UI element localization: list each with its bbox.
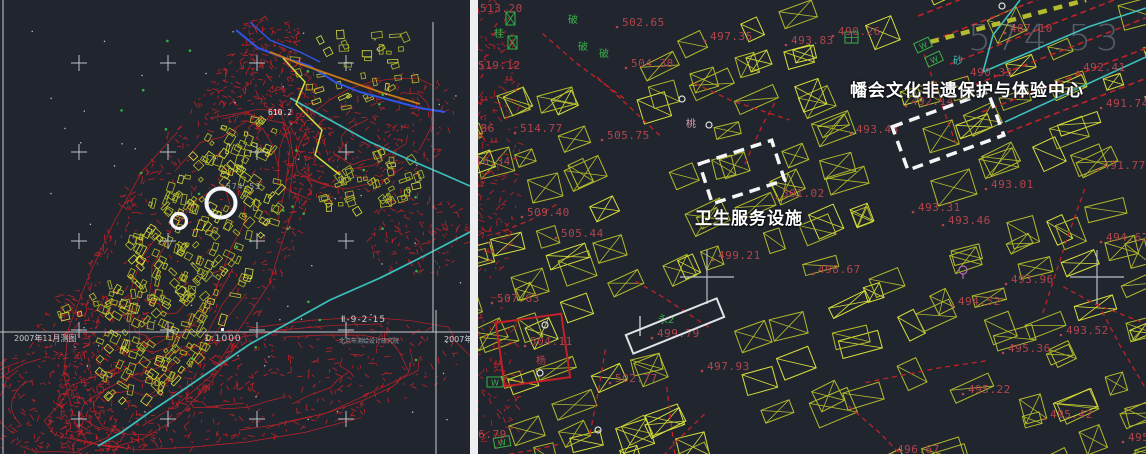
cad-text-symbol: 破	[568, 13, 578, 26]
well-symbol: W	[925, 51, 944, 67]
elevation-label: 507.63	[497, 292, 540, 305]
elevation-label-layer: 513.20502.65497.35493.83490.26487.10519.…	[478, 2, 1146, 454]
cad-text-symbol: 破	[578, 40, 588, 53]
elevation-label: 505.44	[561, 227, 604, 240]
elevation-label: 513.20	[480, 2, 523, 15]
highlight-building-layer	[626, 298, 724, 353]
contour-hatch-layer	[0, 16, 470, 454]
elevation-label: 502.77	[615, 372, 658, 385]
detail-map-canvas[interactable]: WWWW桂破破破砂桃杨永2513.20502.65497.35493.83490…	[478, 0, 1146, 454]
elevation-label: 494.62	[1106, 231, 1146, 244]
elevation-label: 492.41	[1083, 61, 1126, 74]
titleblock-date: 2007年11月测图	[14, 333, 77, 344]
elevation-label: 504.38	[631, 57, 674, 70]
elevation-label: 493.83	[791, 34, 834, 47]
elevation-label: 505.75	[607, 129, 650, 142]
elevation-label: 497.93	[707, 360, 750, 373]
elevation-label: 491.74	[1106, 97, 1146, 110]
well-symbol: W	[487, 377, 503, 388]
cad-text-symbol: 砂	[953, 54, 963, 67]
elevation-label: 493.52	[1066, 324, 1109, 337]
elevation-label: 493.46	[948, 214, 991, 227]
elevation-label: 493.31	[918, 201, 961, 214]
elevation-label: 490.26	[838, 25, 881, 38]
elevation-label: 493.01	[991, 178, 1034, 191]
svg-text:W: W	[929, 54, 940, 66]
overview-map-viewport[interactable]: 610.2 574.53 2007年11月测图 1:1000 Ⅱ-9-2-15 …	[0, 0, 470, 454]
elevation-label: 514.77	[520, 122, 563, 135]
overview-map-canvas[interactable]	[0, 0, 470, 454]
elevation-label: 504.11	[530, 335, 573, 348]
peak-elevation-label: 574.53	[226, 182, 261, 191]
map-frame-layer	[0, 0, 470, 454]
elevation-label: 495.42	[1050, 408, 1093, 421]
panel-divider[interactable]	[470, 0, 478, 454]
titleblock-scale: 1:1000	[204, 334, 242, 344]
elevation-label: 509.40	[527, 206, 570, 219]
elevation-label: 493.96	[1011, 273, 1054, 286]
elevation-label: 494.52	[958, 295, 1001, 308]
site-label-heritage-center: 幡会文化非遗保护与体验中心	[850, 76, 1084, 101]
elevation-label: 502.65	[622, 16, 665, 29]
svg-text:W: W	[491, 379, 499, 388]
cad-text-symbol: 桃	[686, 117, 696, 130]
elevation-label: 496.67	[897, 443, 940, 454]
elevation-label: 519.12	[478, 59, 521, 72]
elevation-label: 495.22	[968, 383, 1011, 396]
cad-text-symbol: 破	[599, 47, 609, 60]
elevation-label: 496.79	[478, 428, 507, 441]
titleblock-adjacent-sheet: 2007年	[444, 334, 470, 345]
spot-elevation-label: 610.2	[268, 108, 292, 117]
elevation-label: 495.36	[1008, 342, 1051, 355]
elevation-label: 495.16	[1128, 431, 1146, 444]
elevation-label: 498.67	[818, 263, 861, 276]
site-outline-layer	[699, 92, 1003, 204]
elevation-label: 501.02	[782, 187, 825, 200]
svg-text:W: W	[918, 40, 929, 52]
elevation-label: 491.77	[1103, 159, 1146, 172]
elevation-label: 497.35	[710, 30, 753, 43]
cad-text-symbol: 杨	[536, 354, 546, 367]
titleblock-sheet-number: Ⅱ-9-2-15	[341, 315, 386, 325]
titleblock-agency: 北京市测绘设计研究院	[339, 336, 399, 345]
site-label-health-facility: 卫生服务设施	[695, 204, 803, 229]
elevation-label: 516.34	[478, 155, 511, 168]
elevation-label: 487.10	[1010, 22, 1053, 35]
well-symbol: W	[914, 37, 933, 53]
elevation-label: 499.21	[718, 249, 761, 262]
cad-text-symbol: 桂	[494, 27, 504, 40]
elevation-label: 518.86	[478, 122, 495, 135]
detail-map-viewport[interactable]: WWWW桂破破破砂桃杨永2513.20502.65497.35493.83490…	[478, 0, 1146, 454]
